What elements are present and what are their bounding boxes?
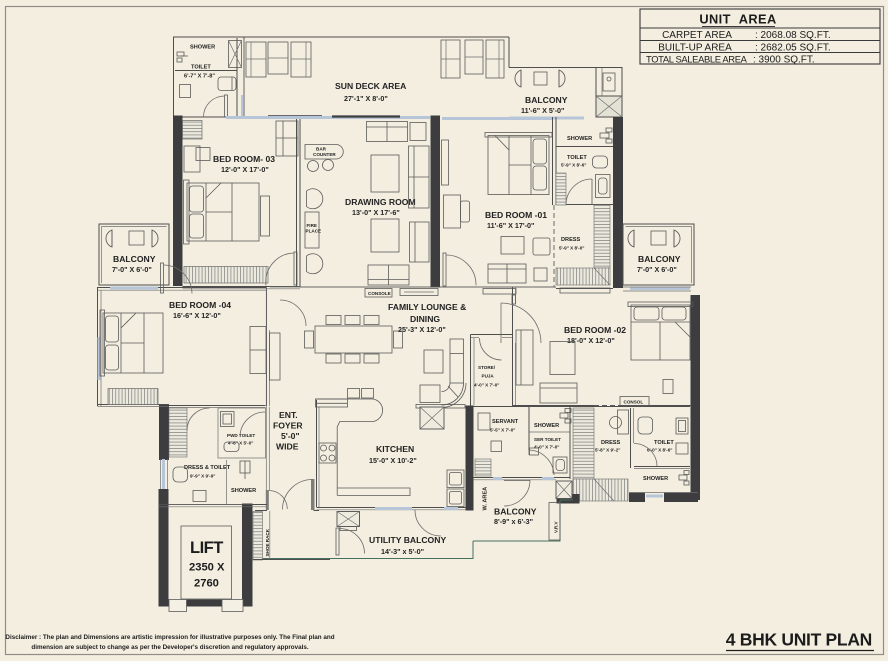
- svg-text:SHOWER: SHOWER: [534, 423, 559, 429]
- svg-text:FIRE: FIRE: [307, 223, 317, 228]
- svg-text:STORE/: STORE/: [478, 365, 496, 370]
- svg-text:5'-0": 5'-0": [281, 431, 300, 441]
- svg-text:15'-0" X 10'-2": 15'-0" X 10'-2": [369, 456, 417, 465]
- svg-text:: 3900 SQ.FT.: : 3900 SQ.FT.: [753, 55, 815, 66]
- svg-text:11'-6" X 17'-0": 11'-6" X 17'-0": [487, 221, 534, 230]
- svg-text:5'-9" X 8'-6": 5'-9" X 8'-6": [561, 163, 586, 168]
- svg-text:dimension are subject to chang: dimension are subject to change as per t…: [31, 644, 308, 651]
- svg-text:SUN DECK AREA: SUN DECK AREA: [335, 81, 406, 91]
- svg-text:LIFT: LIFT: [190, 539, 223, 557]
- svg-text:25'-3" X 12'-0": 25'-3" X 12'-0": [398, 325, 446, 334]
- svg-text:SHOWER: SHOWER: [231, 488, 256, 494]
- svg-text:CONSOL: CONSOL: [624, 400, 644, 405]
- svg-text:WIDE: WIDE: [276, 442, 299, 452]
- svg-text:Disclaimer : The plan and Dime: Disclaimer : The plan and Dimensions are…: [5, 634, 334, 641]
- svg-text:SHOWER: SHOWER: [643, 476, 668, 482]
- svg-text:SHOWER: SHOWER: [567, 136, 592, 142]
- svg-text:SHOWER: SHOWER: [190, 45, 215, 51]
- svg-text:13'-0" X 17'-6": 13'-0" X 17'-6": [352, 208, 400, 217]
- svg-text:BED ROOM -02: BED ROOM -02: [564, 325, 626, 335]
- svg-text:UTILITY BALCONY: UTILITY BALCONY: [369, 535, 446, 545]
- svg-text:FOYER: FOYER: [273, 421, 303, 431]
- svg-text:PLACE: PLACE: [306, 229, 322, 234]
- svg-text:: 2068.08 SQ.FT.: : 2068.08 SQ.FT.: [755, 30, 831, 41]
- svg-text:5'-5" X 7'-0": 5'-5" X 7'-0": [490, 428, 515, 433]
- svg-text:4'-6" X 5'-0": 4'-6" X 5'-0": [228, 441, 253, 446]
- svg-text:6'-0" X 8'-6": 6'-0" X 8'-6": [647, 448, 672, 453]
- svg-text:8'-9" x 6'-3": 8'-9" x 6'-3": [494, 517, 533, 526]
- svg-text:PUJA: PUJA: [482, 374, 495, 379]
- svg-text:7'-0" X 6'-0": 7'-0" X 6'-0": [112, 265, 152, 274]
- svg-text:5'-8" X 9'-2": 5'-8" X 9'-2": [595, 448, 620, 453]
- svg-text:DRESS & TOILET: DRESS & TOILET: [184, 465, 231, 471]
- svg-text:COUNTER: COUNTER: [313, 152, 336, 157]
- svg-text:18'-0" X 12'-0": 18'-0" X 12'-0": [567, 336, 615, 345]
- svg-text:4'-0" X 7'-0": 4'-0" X 7'-0": [474, 383, 499, 388]
- svg-text:BALCONY: BALCONY: [494, 507, 537, 517]
- svg-text:CARPET AREA: CARPET AREA: [662, 30, 732, 41]
- svg-text:2760: 2760: [194, 578, 219, 590]
- svg-text:14'-3" x 5'-0": 14'-3" x 5'-0": [381, 547, 424, 556]
- svg-text:BAR: BAR: [316, 147, 327, 152]
- svg-text:12'-0" X 17'-0": 12'-0" X 17'-0": [221, 165, 269, 174]
- svg-text:4'-0" X 7'-0": 4'-0" X 7'-0": [534, 445, 559, 450]
- svg-text:2350 X: 2350 X: [189, 562, 225, 574]
- svg-text:ENT.: ENT.: [279, 410, 298, 420]
- svg-text:DRESS: DRESS: [601, 440, 621, 446]
- svg-text:CONSOLE: CONSOLE: [368, 291, 391, 296]
- svg-text:V.R.V: V.R.V: [554, 520, 559, 533]
- svg-text:7'-0" X 6'-0": 7'-0" X 6'-0": [637, 265, 677, 274]
- svg-text:UNIT AREA: UNIT AREA: [699, 12, 776, 27]
- svg-text:BED ROOM -01: BED ROOM -01: [485, 210, 547, 220]
- svg-text:W. AREA: W. AREA: [483, 487, 489, 511]
- svg-text:16'-6" X 12'-0": 16'-6" X 12'-0": [173, 311, 221, 320]
- svg-text:SHOE RACK: SHOE RACK: [265, 528, 270, 556]
- svg-text:4 BHK UNIT PLAN: 4 BHK UNIT PLAN: [726, 630, 872, 650]
- svg-text:SERVANT: SERVANT: [492, 419, 519, 425]
- svg-text:TOTAL SALEABLE AREA: TOTAL SALEABLE AREA: [646, 54, 748, 65]
- svg-text:BUILT-UP AREA: BUILT-UP AREA: [658, 43, 732, 54]
- svg-text:BED ROOM -04: BED ROOM -04: [169, 300, 231, 310]
- svg-text:KITCHEN: KITCHEN: [376, 444, 414, 454]
- svg-text:: 2682.05 SQ.FT.: : 2682.05 SQ.FT.: [755, 43, 831, 54]
- svg-text:5'-9" X 8'-0": 5'-9" X 8'-0": [559, 246, 584, 251]
- svg-text:SER TOILET: SER TOILET: [534, 437, 561, 442]
- svg-text:DINING: DINING: [410, 314, 440, 324]
- svg-text:9'-9" X 9'-9": 9'-9" X 9'-9": [190, 474, 215, 479]
- svg-text:BALCONY: BALCONY: [525, 95, 568, 105]
- svg-text:BED ROOM- 03: BED ROOM- 03: [213, 154, 275, 164]
- svg-text:11'-6" X 5'-0": 11'-6" X 5'-0": [521, 106, 564, 115]
- svg-text:TOILET: TOILET: [567, 155, 587, 161]
- svg-text:TOILET: TOILET: [191, 65, 211, 71]
- svg-text:DRESS: DRESS: [561, 237, 581, 243]
- svg-text:TOILET: TOILET: [654, 440, 674, 446]
- svg-text:BALCONY: BALCONY: [638, 254, 681, 264]
- svg-text:PWD TOILET: PWD TOILET: [227, 433, 255, 438]
- svg-text:FAMILY LOUNGE &: FAMILY LOUNGE &: [388, 302, 466, 312]
- svg-text:DRAWING ROOM: DRAWING ROOM: [345, 197, 416, 207]
- svg-text:27'-1" X 8'-0": 27'-1" X 8'-0": [344, 94, 388, 103]
- svg-text:6'-7" X 7'-8": 6'-7" X 7'-8": [184, 74, 215, 80]
- svg-text:BALCONY: BALCONY: [113, 254, 156, 264]
